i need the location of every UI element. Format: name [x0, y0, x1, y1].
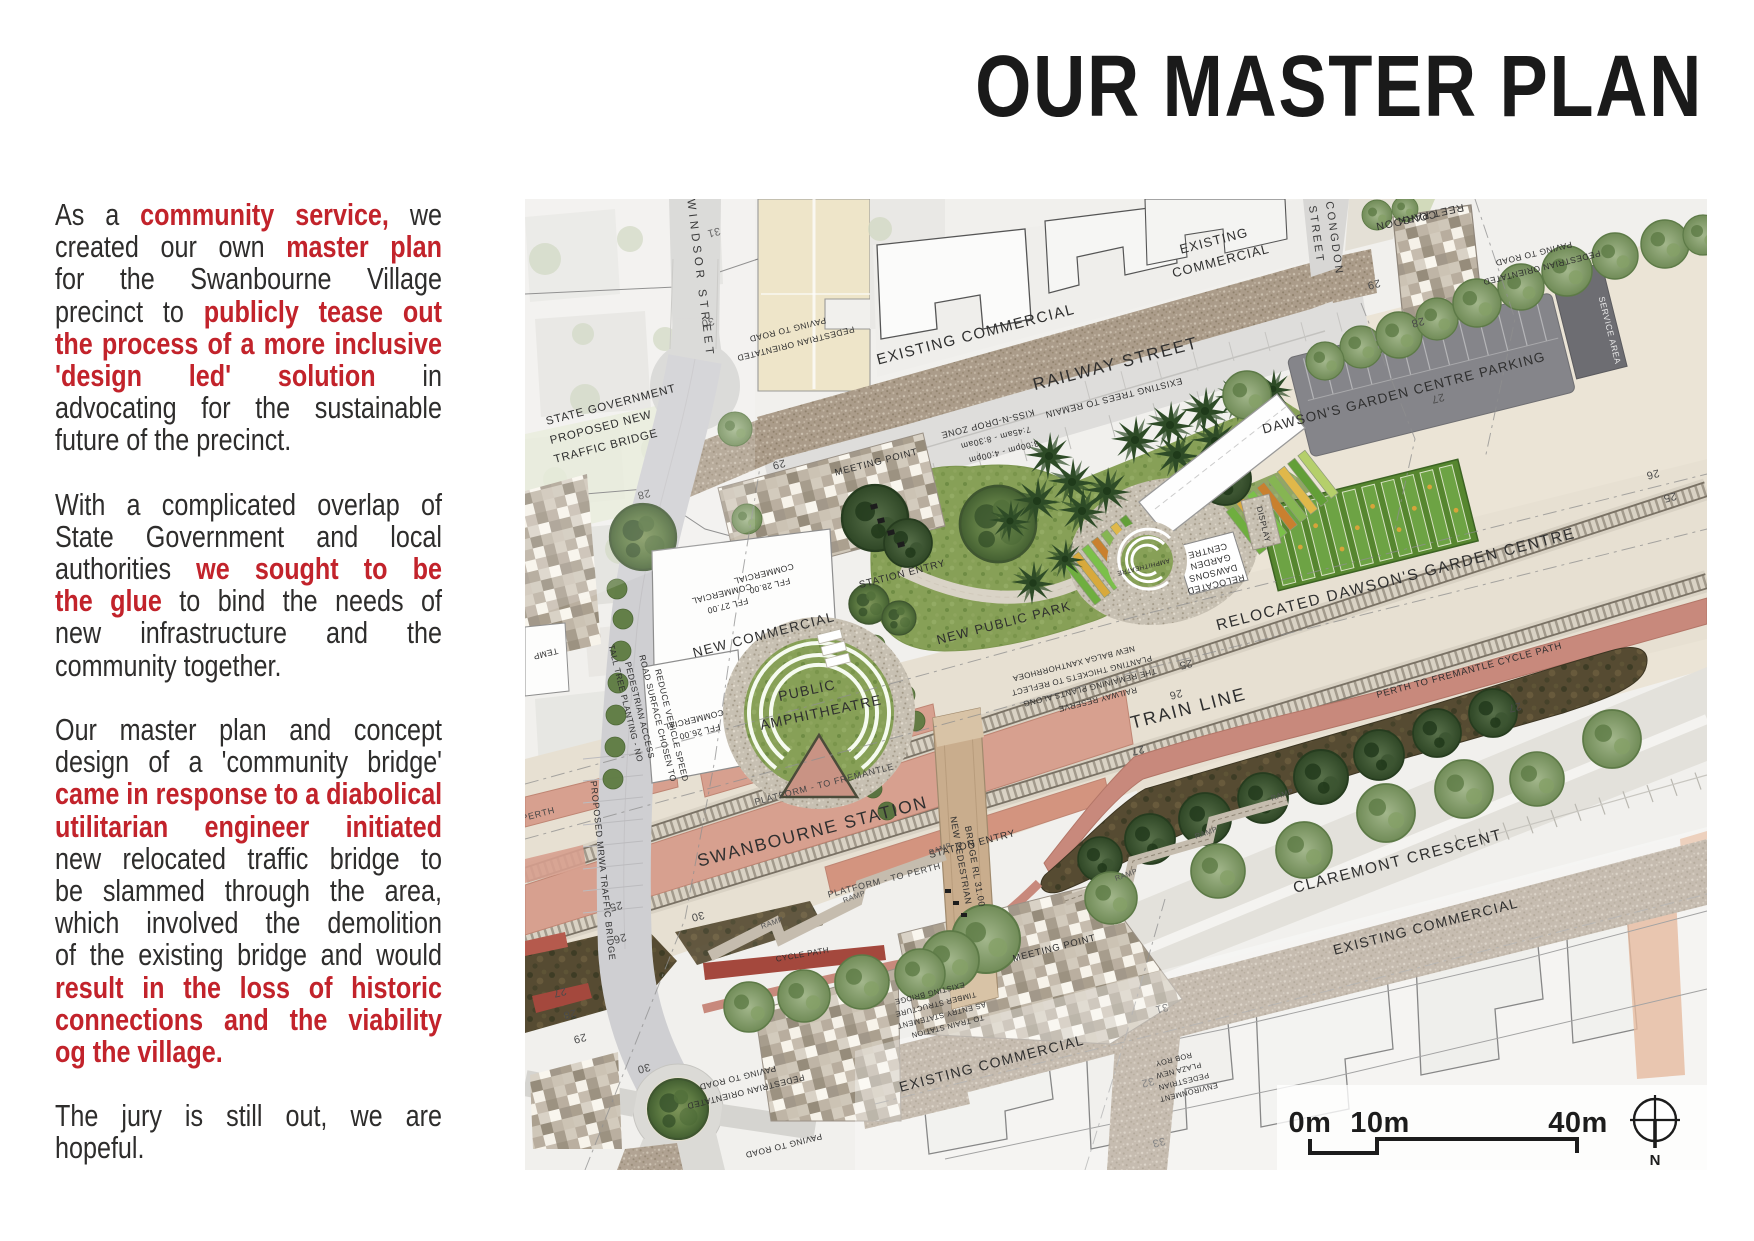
svg-text:10m: 10m	[1350, 1107, 1410, 1139]
svg-text:40m: 40m	[1548, 1107, 1608, 1139]
svg-text:N: N	[1650, 1152, 1661, 1169]
svg-text:0m: 0m	[1289, 1107, 1332, 1139]
